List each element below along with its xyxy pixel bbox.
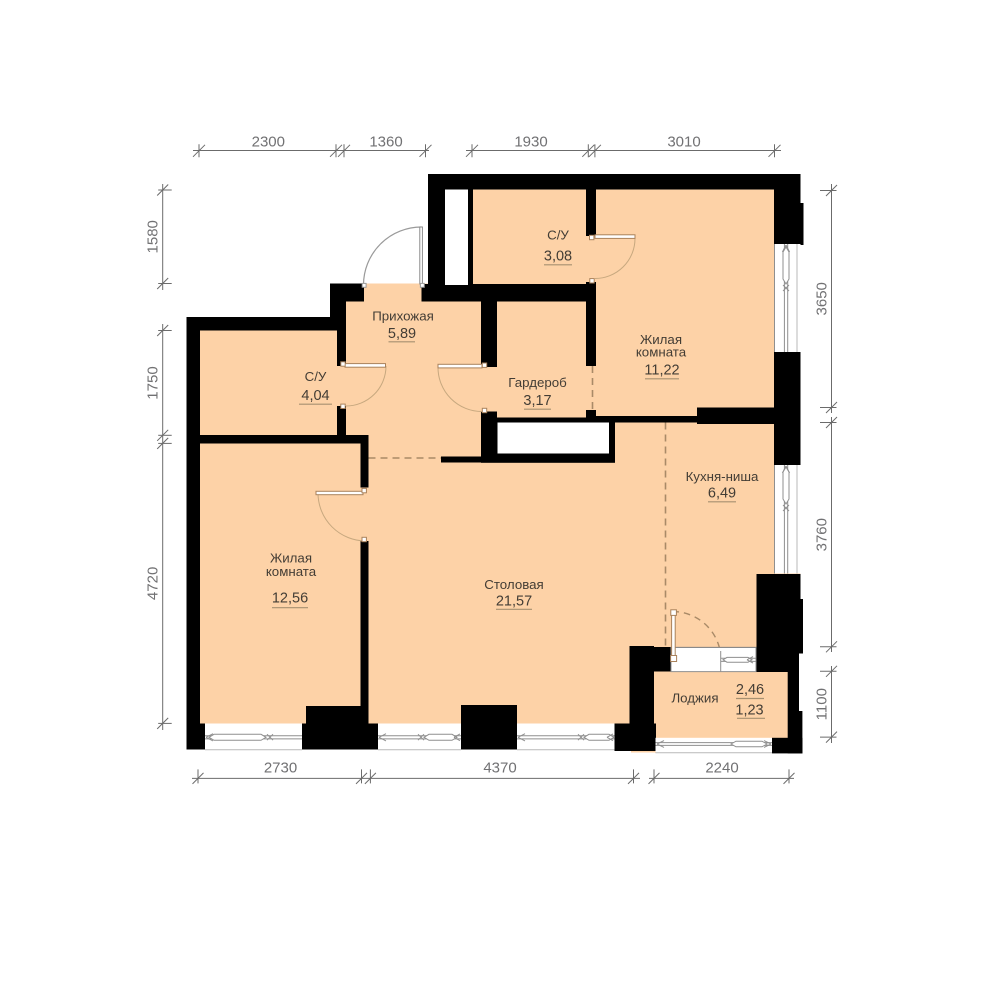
svg-text:5,89: 5,89 [388, 326, 416, 342]
svg-text:4,04: 4,04 [301, 388, 329, 404]
svg-text:4370: 4370 [483, 760, 516, 777]
svg-text:2240: 2240 [705, 760, 738, 777]
svg-text:11,22: 11,22 [644, 363, 679, 379]
svg-text:1360: 1360 [369, 134, 402, 151]
svg-text:комната: комната [636, 345, 687, 360]
svg-text:1,23: 1,23 [735, 703, 763, 719]
svg-text:2300: 2300 [252, 134, 285, 151]
svg-text:С/У: С/У [305, 369, 327, 384]
svg-text:2730: 2730 [264, 760, 297, 777]
svg-text:1580: 1580 [145, 220, 162, 253]
svg-text:Столовая: Столовая [484, 577, 543, 592]
svg-text:Гардероб: Гардероб [508, 375, 567, 390]
svg-text:3,17: 3,17 [523, 393, 551, 409]
svg-text:1100: 1100 [814, 688, 831, 720]
svg-text:Прихожая: Прихожая [372, 309, 434, 324]
svg-text:Лоджия: Лоджия [671, 691, 718, 706]
svg-text:12,56: 12,56 [272, 591, 308, 607]
svg-text:1930: 1930 [514, 134, 547, 151]
svg-text:комната: комната [266, 564, 317, 579]
svg-text:3010: 3010 [667, 134, 700, 151]
svg-text:21,57: 21,57 [496, 594, 532, 610]
svg-text:4720: 4720 [145, 567, 162, 600]
svg-text:С/У: С/У [547, 228, 569, 243]
svg-text:1750: 1750 [145, 366, 162, 399]
svg-text:3650: 3650 [814, 282, 831, 315]
svg-text:2,46: 2,46 [736, 682, 764, 698]
svg-text:3,08: 3,08 [544, 249, 572, 265]
svg-text:3760: 3760 [814, 518, 831, 551]
svg-text:Кухня-ниша: Кухня-ниша [686, 469, 759, 484]
svg-text:6,49: 6,49 [708, 486, 736, 502]
